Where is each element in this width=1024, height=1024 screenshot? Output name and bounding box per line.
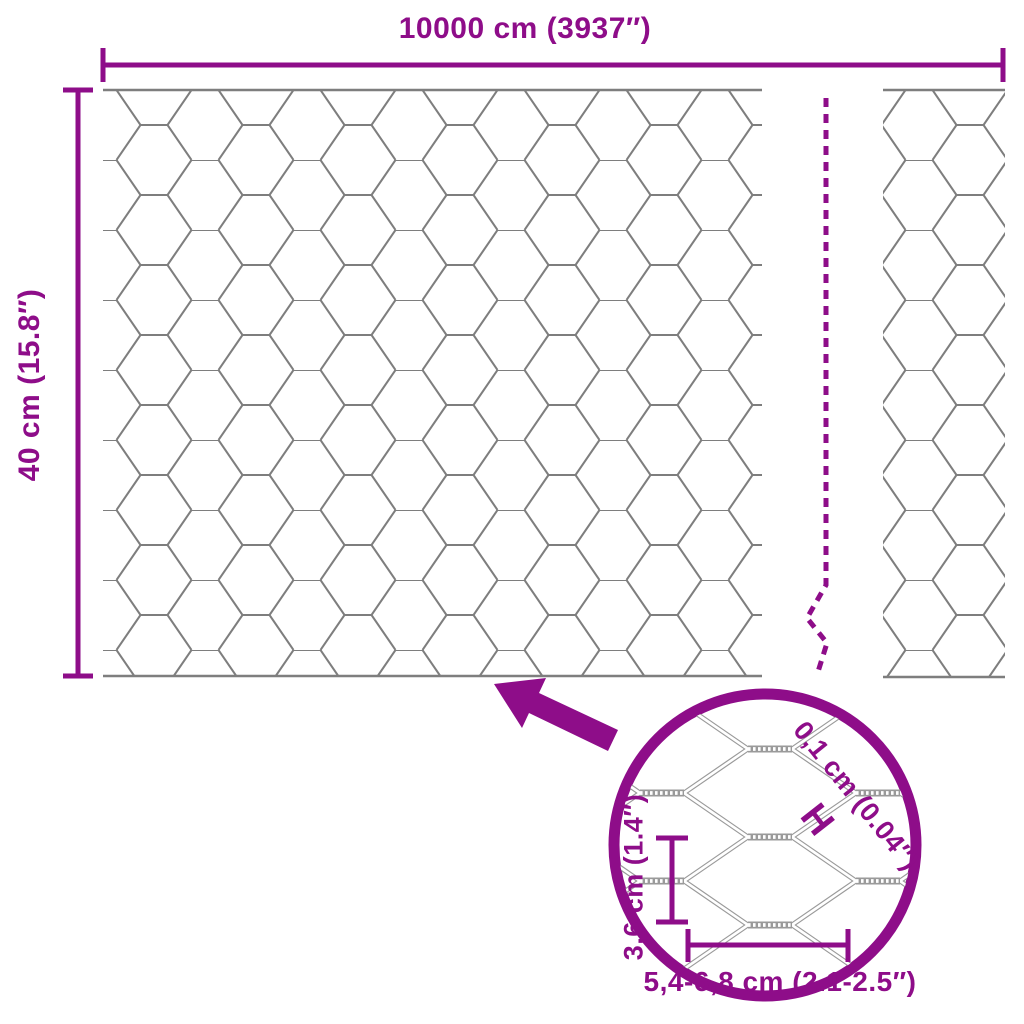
width-dimension-label: 10000 cm (3937″) [399, 14, 652, 44]
mesh-panel-right [883, 90, 1005, 677]
height-dimension-line [63, 90, 93, 676]
height-dimension-label: 40 cm (15.8″) [15, 289, 45, 482]
continuation-dashed-line [807, 98, 827, 675]
diagram-canvas [0, 0, 1024, 1024]
width-dimension-line [103, 48, 1003, 82]
detail-width-label: 5,4-6,8 cm (2.1-2.5″) [644, 968, 917, 996]
product-dimension-diagram: 10000 cm (3937″) 40 cm (15.8″) 0,1 cm (0… [0, 0, 1024, 1024]
zoom-arrow-icon [494, 678, 618, 751]
magnifier-circle-icon [614, 694, 916, 996]
detail-height-label: 3,6 cm (1.4″) [621, 794, 648, 961]
mesh-panel-main [103, 90, 762, 676]
